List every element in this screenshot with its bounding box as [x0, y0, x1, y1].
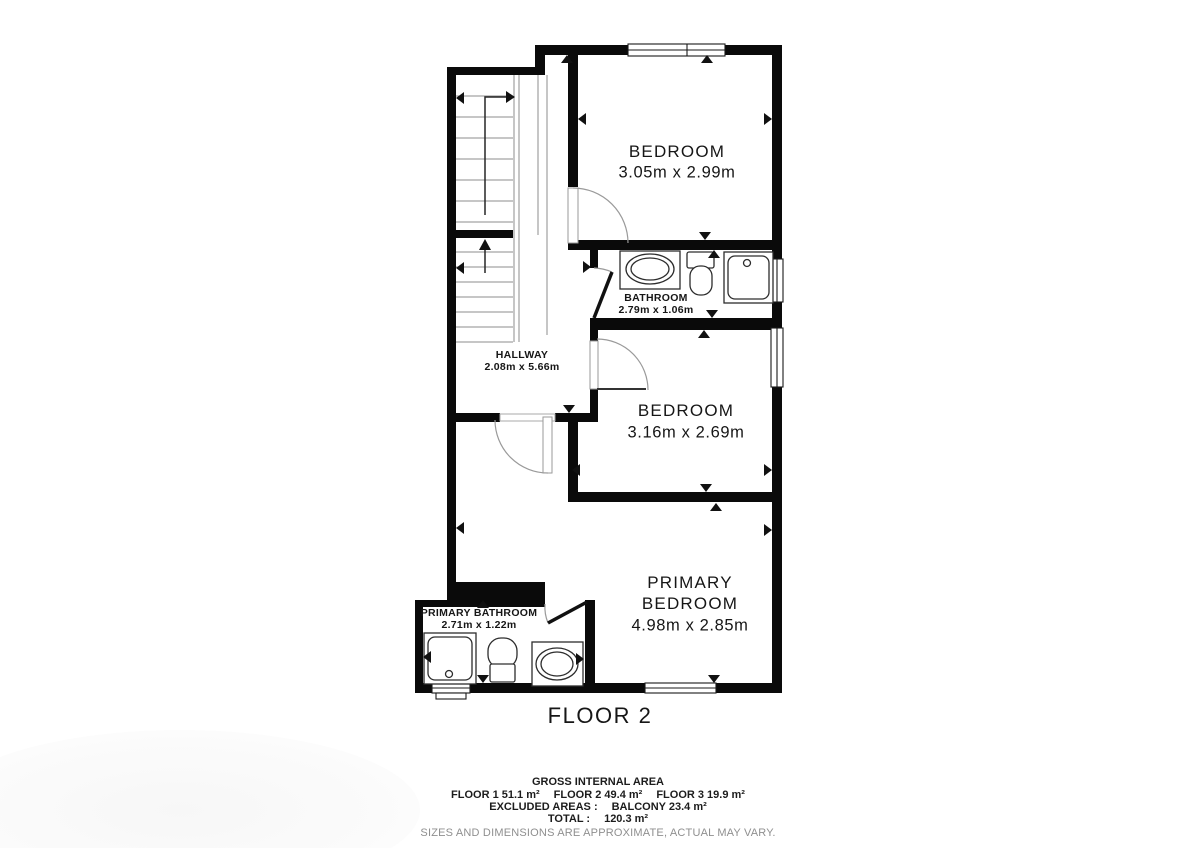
excluded-areas-value: BALCONY 23.4 m²	[612, 801, 707, 813]
room-dims-primary-bedroom: 4.98m x 2.85m	[632, 617, 749, 636]
staircase	[456, 75, 547, 342]
stair-direction-up	[479, 91, 515, 273]
bathroom-toilet	[687, 252, 714, 295]
primary-bathroom-sink	[532, 642, 583, 686]
floor2-area: FLOOR 2 49.4 m²	[554, 789, 643, 801]
door-bedroom-mid	[590, 339, 648, 390]
total-label: TOTAL :	[548, 813, 590, 825]
floor3-area: FLOOR 3 19.9 m²	[656, 789, 745, 801]
room-label-bathroom: BATHROOM	[624, 292, 687, 304]
door-hallway-primary	[495, 414, 555, 473]
excluded-areas-label: EXCLUDED AREAS :	[489, 801, 597, 813]
door-bathroom	[594, 268, 612, 318]
total-area-line: TOTAL :120.3 m²	[541, 813, 655, 825]
primary-bathroom-shower	[424, 633, 476, 684]
gross-internal-area-title: GROSS INTERNAL AREA	[532, 776, 664, 788]
room-label-bedroom-mid: BEDROOM	[638, 401, 734, 421]
floorplan-page: BEDROOM 3.05m x 2.99m BATHROOM 2.79m x 1…	[0, 0, 1200, 848]
bathroom-sink	[620, 251, 680, 289]
window-primary-bedroom-bottom	[645, 683, 716, 693]
room-label-hallway: HALLWAY	[496, 349, 548, 361]
room-label-bedroom-top: BEDROOM	[629, 142, 725, 162]
floor-title: FLOOR 2	[548, 703, 653, 729]
window-bedroom-mid-right	[771, 328, 783, 387]
room-dims-hallway: 2.08m x 5.66m	[484, 361, 559, 373]
door-bedroom-top	[568, 188, 628, 243]
floor1-area: FLOOR 1 51.1 m²	[451, 789, 540, 801]
total-value: 120.3 m²	[604, 813, 648, 825]
window-bedroom-top	[628, 44, 725, 56]
disclaimer-text: SIZES AND DIMENSIONS ARE APPROXIMATE, AC…	[420, 827, 775, 839]
room-dims-primary-bathroom: 2.71m x 1.22m	[441, 619, 516, 631]
room-dims-bathroom: 2.79m x 1.06m	[618, 304, 693, 316]
room-label-primary-bathroom: PRIMARY BATHROOM	[421, 607, 538, 619]
excluded-areas-line: EXCLUDED AREAS :BALCONY 23.4 m²	[482, 801, 714, 813]
window-primary-bathroom-bottom	[432, 683, 470, 699]
floor-areas-line: FLOOR 1 51.1 m²FLOOR 2 49.4 m²FLOOR 3 19…	[444, 789, 752, 801]
door-primary-bathroom	[545, 602, 587, 623]
bathroom-shower	[724, 252, 773, 303]
room-dims-bedroom-mid: 3.16m x 2.69m	[628, 424, 745, 443]
room-label-primary-bedroom: PRIMARY BEDROOM	[620, 572, 760, 614]
room-dims-bedroom-top: 3.05m x 2.99m	[619, 164, 736, 183]
primary-bathroom-toilet	[488, 638, 517, 682]
